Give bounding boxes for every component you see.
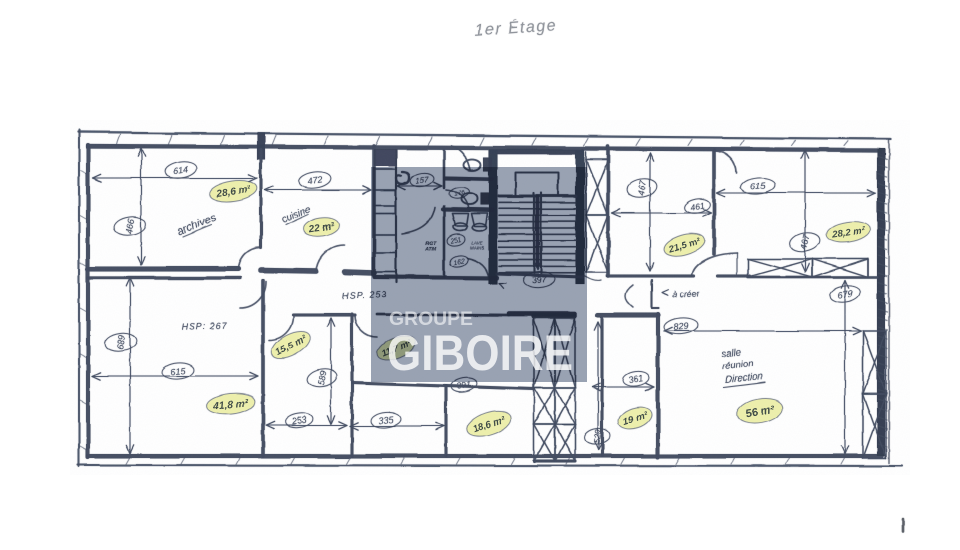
svg-text:GIBOIRE: GIBOIRE [387,325,573,381]
